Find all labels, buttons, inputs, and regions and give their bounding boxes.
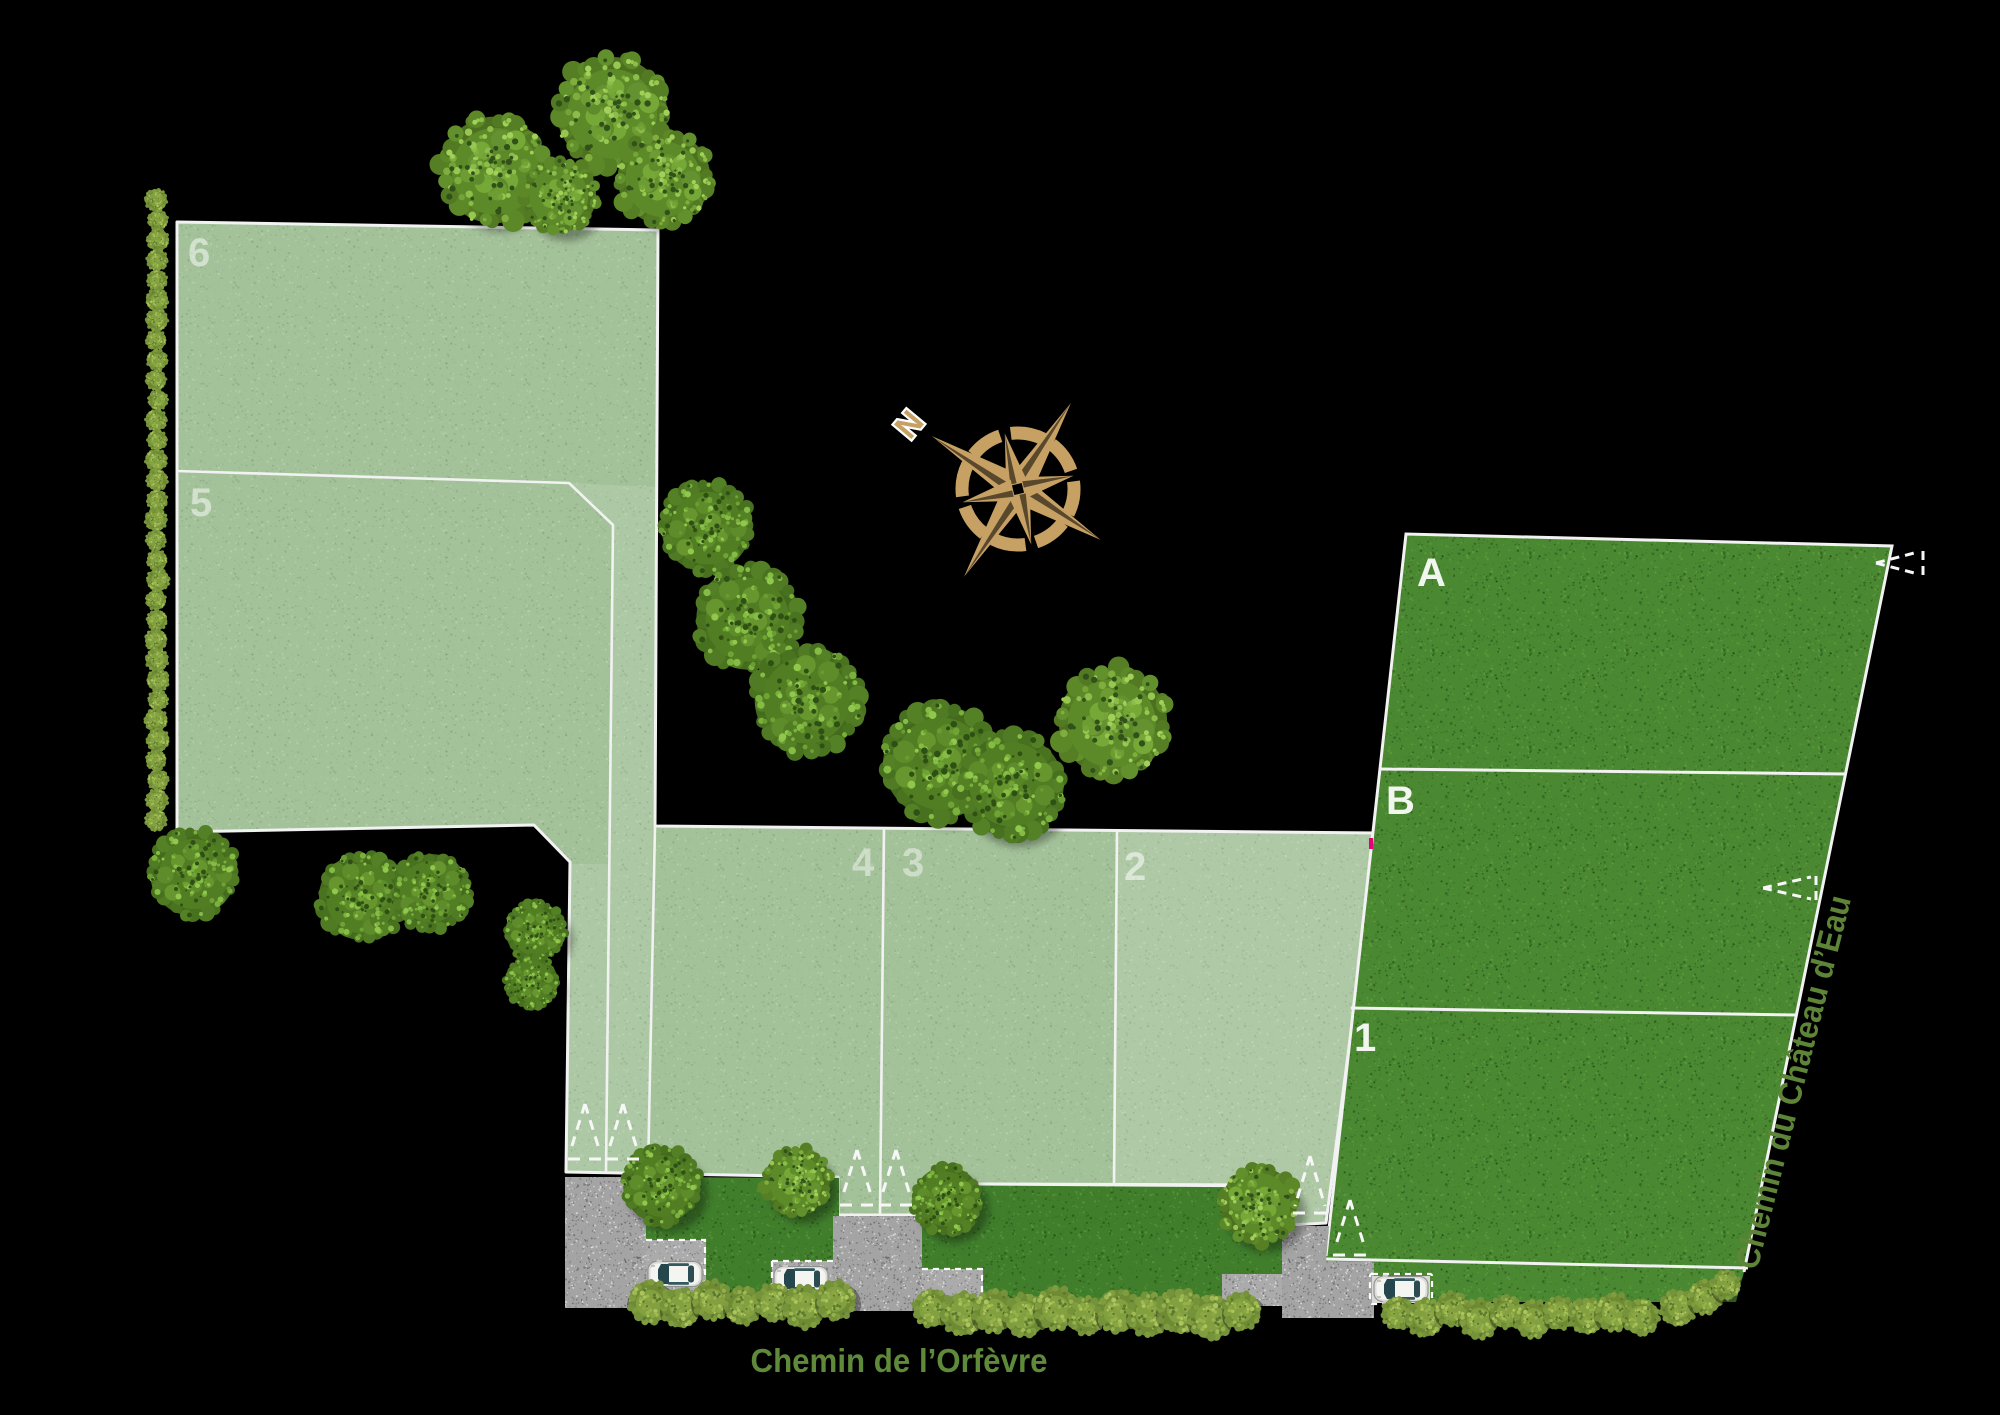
svg-text:A: A: [1417, 551, 1446, 595]
svg-text:5: 5: [190, 481, 212, 525]
svg-text:3: 3: [902, 841, 924, 885]
svg-text:Chemin de l’Orfèvre: Chemin de l’Orfèvre: [751, 1342, 1048, 1379]
svg-text:2: 2: [1124, 845, 1146, 889]
svg-text:6: 6: [188, 231, 210, 275]
svg-text:B: B: [1386, 779, 1415, 823]
svg-text:4: 4: [852, 841, 875, 885]
svg-text:1: 1: [1354, 1016, 1376, 1060]
